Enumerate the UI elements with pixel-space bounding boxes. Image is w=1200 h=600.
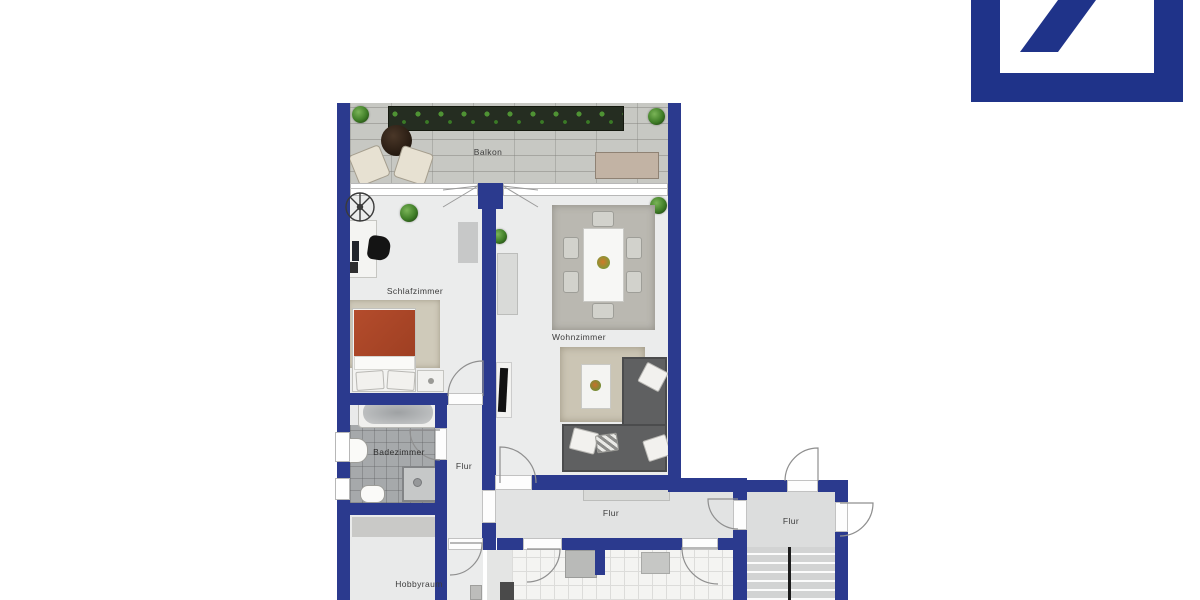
wall xyxy=(337,462,350,478)
door-opening xyxy=(682,538,718,550)
sofa-pillow-striped xyxy=(595,433,619,454)
coffee-table-flowers xyxy=(590,380,601,391)
wall xyxy=(482,523,496,550)
door-opening xyxy=(448,538,483,550)
window xyxy=(335,478,350,500)
plant-icon xyxy=(352,106,369,123)
stair-handrail xyxy=(788,547,791,600)
room-label-hallway-south: Flur xyxy=(603,508,619,518)
room-label-living-room: Wohnzimmer xyxy=(552,332,606,342)
floor-plan-page: Balkon Schlafzimmer Wohnzimmer Badezimme… xyxy=(0,0,1200,600)
wall xyxy=(733,492,747,500)
room-label-hallway-middle: Flur xyxy=(456,461,472,471)
wall xyxy=(668,196,681,490)
window xyxy=(350,183,478,196)
wall-stub xyxy=(595,540,605,575)
stairs xyxy=(747,547,835,600)
plant-icon xyxy=(400,204,418,222)
wall xyxy=(435,460,447,503)
nightstand-knob xyxy=(428,378,434,384)
room-label-bathroom: Badezimmer xyxy=(373,447,425,457)
wall xyxy=(337,103,350,196)
window-mullion xyxy=(350,188,478,189)
dining-chair xyxy=(592,303,614,319)
dining-chair xyxy=(626,271,642,293)
bottom-tiled-room-floor xyxy=(512,550,733,600)
wall xyxy=(532,475,680,490)
cabinet xyxy=(565,550,597,578)
wall xyxy=(497,538,523,550)
door-opening xyxy=(495,475,532,490)
dining-chair xyxy=(592,211,614,227)
wall xyxy=(482,196,496,490)
bed-sheet-fold xyxy=(354,356,415,370)
wall xyxy=(337,503,447,515)
hobby-room-rug xyxy=(352,517,436,537)
cabinet xyxy=(641,552,670,574)
shower-drain xyxy=(413,478,422,487)
door-opening xyxy=(482,490,496,523)
cabinet-dark xyxy=(500,582,514,600)
toilet xyxy=(360,485,385,503)
wall xyxy=(435,405,447,428)
wall xyxy=(483,475,495,490)
window-mullion xyxy=(503,188,668,189)
monitor xyxy=(352,241,359,261)
door-opening xyxy=(523,538,562,550)
wardrobe xyxy=(458,222,478,263)
wall xyxy=(337,393,448,405)
bed-pillow xyxy=(386,370,415,391)
door-swing-arc xyxy=(785,448,818,481)
dining-chair xyxy=(563,237,579,259)
balcony-planter xyxy=(388,106,624,131)
plant-icon xyxy=(648,108,665,125)
balcony-bench xyxy=(595,152,659,179)
room-label-bedroom: Schlafzimmer xyxy=(387,286,443,296)
window xyxy=(503,183,668,196)
bed-duvet xyxy=(354,310,415,359)
cabinet-small xyxy=(470,585,482,600)
dining-chair xyxy=(626,237,642,259)
room-label-balcony: Balkon xyxy=(474,147,502,157)
door-opening xyxy=(787,480,818,492)
deutsche-bank-logo xyxy=(971,0,1183,102)
dining-chair xyxy=(563,271,579,293)
room-label-hobby-room: Hobbyraum xyxy=(395,579,443,589)
wall xyxy=(337,500,350,600)
wall xyxy=(562,538,682,550)
table-centerpiece xyxy=(597,256,610,269)
window xyxy=(335,432,350,462)
door-opening xyxy=(448,393,483,405)
wall xyxy=(835,532,848,600)
sideboard xyxy=(497,253,518,315)
bed-pillow xyxy=(355,370,384,391)
wall xyxy=(835,480,848,502)
door-opening xyxy=(435,428,447,460)
room-label-hallway-stairwell: Flur xyxy=(783,516,799,526)
wall xyxy=(668,103,681,196)
wall xyxy=(747,480,787,492)
wall xyxy=(733,530,747,600)
door-opening xyxy=(733,500,747,530)
door-opening xyxy=(835,502,848,532)
wall xyxy=(718,538,733,550)
